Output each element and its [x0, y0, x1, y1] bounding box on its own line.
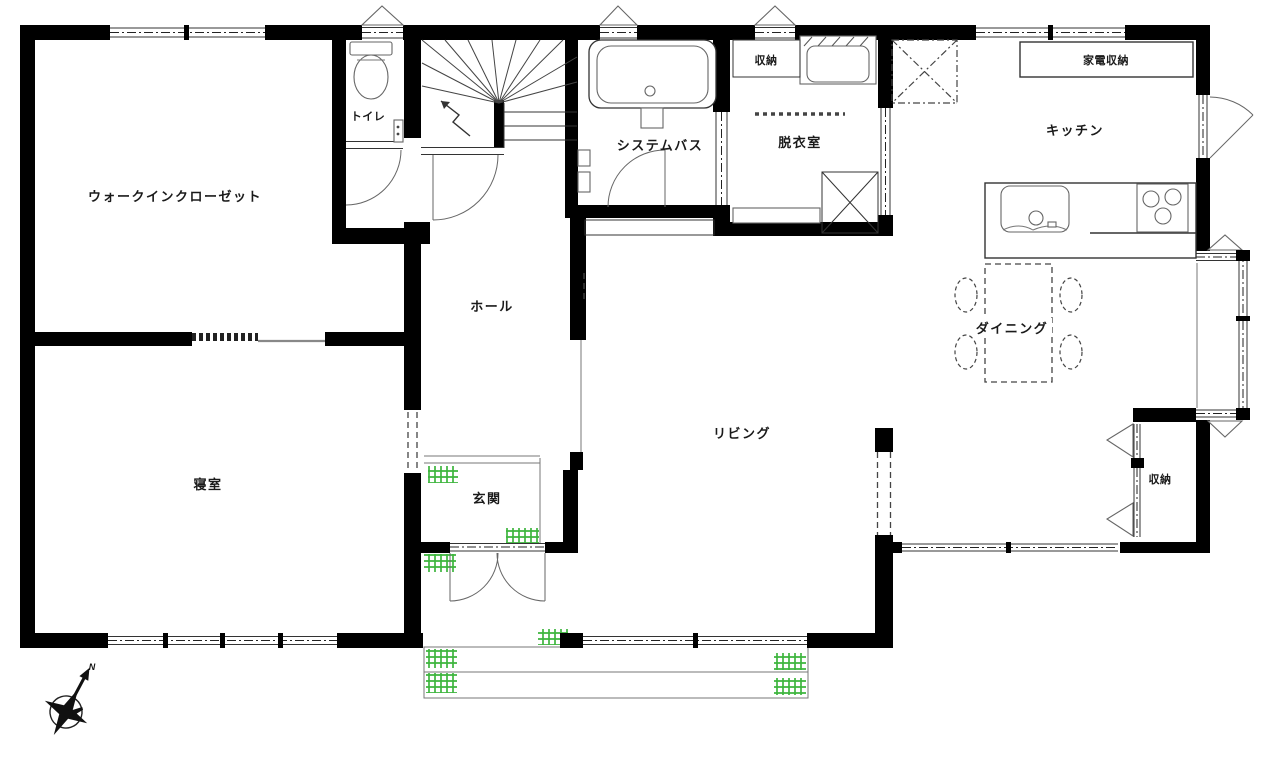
door-dressing-sliding — [878, 108, 893, 215]
label-walk-in-closet: ウォークインクローゼット — [88, 189, 262, 204]
dining-chair — [955, 278, 977, 312]
floor-plan-drawing: N ウォークインクローゼット トイレ システムバス 収納 脱衣室 キッチン 家電… — [0, 0, 1269, 773]
dining-chair — [1060, 278, 1082, 312]
door-bedroom-hall — [408, 412, 417, 471]
room-labels: ウォークインクローゼット トイレ システムバス 収納 脱衣室 キッチン 家電収納… — [88, 53, 1172, 506]
door-bath-sliding — [713, 112, 730, 205]
porch-grass — [774, 653, 806, 670]
label-kitchen: キッチン — [1046, 123, 1104, 138]
kitchen-stove — [1137, 184, 1188, 232]
window-kitchen — [976, 25, 1125, 40]
window-bedroom — [108, 633, 337, 648]
label-storage-lower: 収納 — [1149, 472, 1172, 486]
label-hall: ホール — [470, 299, 514, 314]
window-living-east — [902, 542, 1118, 553]
opening-living-partition — [878, 452, 891, 535]
window-awning-toilet — [362, 6, 403, 40]
floor-boundary-lines — [424, 220, 1197, 543]
dining-chair — [1060, 335, 1082, 369]
kitchen-counter — [985, 183, 1196, 258]
porch-grass — [774, 678, 806, 695]
label-dining-group: ダイニング — [972, 318, 1052, 336]
window-dining-bay — [1196, 235, 1250, 437]
label-dressing-room: 脱衣室 — [778, 135, 822, 150]
kitchen-sink — [1001, 186, 1069, 232]
kitchen-fixtures — [892, 40, 1196, 258]
door-toilet — [346, 142, 403, 206]
porch-step — [424, 647, 808, 672]
label-living: リビング — [713, 426, 771, 441]
door-stair-hall — [421, 148, 504, 221]
label-storage-upper: 収納 — [755, 53, 778, 67]
porch-step — [424, 672, 808, 698]
door-bath — [608, 150, 665, 207]
dining-chair — [955, 335, 977, 369]
door-bedroom-wic-sliding — [192, 337, 325, 341]
compass-north-label: N — [89, 662, 96, 672]
door-entrance — [450, 544, 545, 602]
entry-mat — [428, 466, 458, 483]
walls — [20, 25, 1210, 648]
label-appliance-storage: 家電収納 — [1083, 53, 1129, 67]
floor-plan-page: N ウォークインクローゼット トイレ システムバス 収納 脱衣室 キッチン 家電… — [0, 0, 1269, 773]
vanity-counter — [733, 208, 820, 223]
window-wic — [110, 25, 265, 40]
porch-grass — [426, 649, 457, 668]
entry-mat — [506, 528, 539, 544]
label-toilet: トイレ — [351, 110, 386, 123]
bath-counter-ledge — [585, 220, 714, 235]
shower-unit — [578, 150, 590, 192]
washing-machine — [800, 36, 876, 84]
compass-rose: N — [33, 657, 111, 747]
door-kitchen — [1196, 95, 1253, 158]
door-storage-bifold — [1107, 424, 1144, 537]
entrance-porch-steps — [424, 647, 808, 698]
porch-grass — [426, 673, 457, 693]
window-awning-dressing — [755, 6, 795, 40]
refrigerator-space — [892, 40, 957, 103]
bathtub — [589, 40, 716, 128]
label-system-bath: システムバス — [617, 138, 704, 153]
window-awning-bath — [600, 6, 637, 40]
label-bedroom: 寝室 — [193, 477, 222, 492]
window-living — [583, 633, 807, 648]
toilet-fixture — [350, 42, 403, 142]
label-dining: ダイニング — [976, 321, 1049, 336]
stair-direction-arrow — [441, 101, 470, 136]
label-entrance: 玄関 — [472, 491, 501, 506]
porch-grass — [424, 554, 456, 572]
doors — [192, 95, 1253, 601]
